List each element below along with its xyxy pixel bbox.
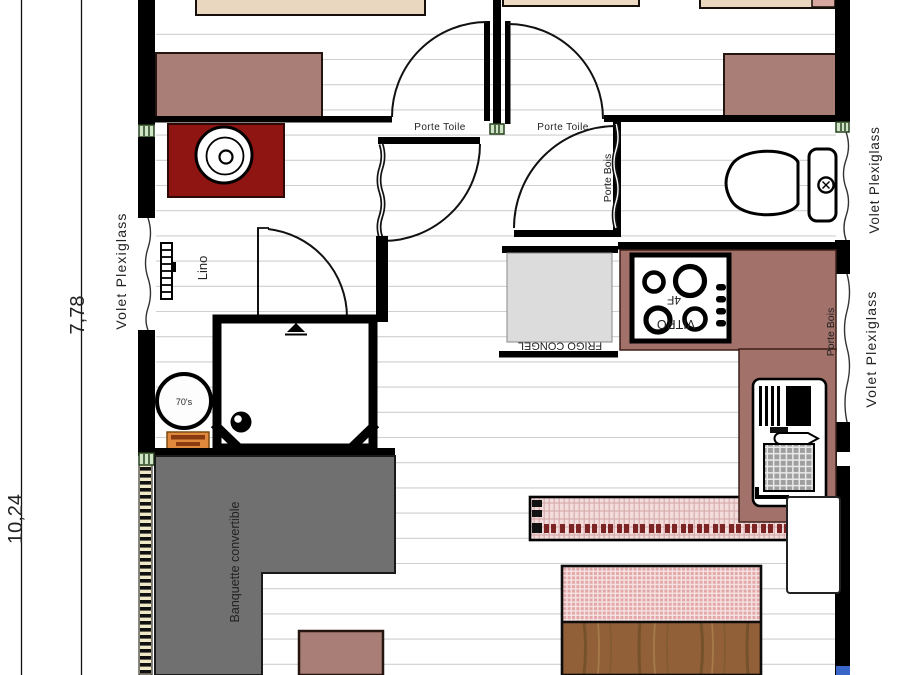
svg-text:Volet Plexiglass: Volet Plexiglass xyxy=(867,126,882,233)
svg-text:FRIGO CONGEL: FRIGO CONGEL xyxy=(518,340,602,352)
svg-text:Volet Plexiglass: Volet Plexiglass xyxy=(113,212,129,329)
svg-text:Lino: Lino xyxy=(195,256,210,281)
svg-text:10,24: 10,24 xyxy=(5,494,27,544)
svg-text:Porte Toile: Porte Toile xyxy=(414,122,466,133)
svg-text:70's: 70's xyxy=(176,397,193,407)
svg-text:VITRO: VITRO xyxy=(657,317,695,331)
svg-text:Porte Bois: Porte Bois xyxy=(825,308,837,356)
svg-text:4F: 4F xyxy=(667,293,681,307)
svg-text:Volet Plexiglass: Volet Plexiglass xyxy=(863,290,879,407)
svg-text:Banquette convertible: Banquette convertible xyxy=(228,501,242,622)
svg-text:7,78: 7,78 xyxy=(67,296,89,335)
